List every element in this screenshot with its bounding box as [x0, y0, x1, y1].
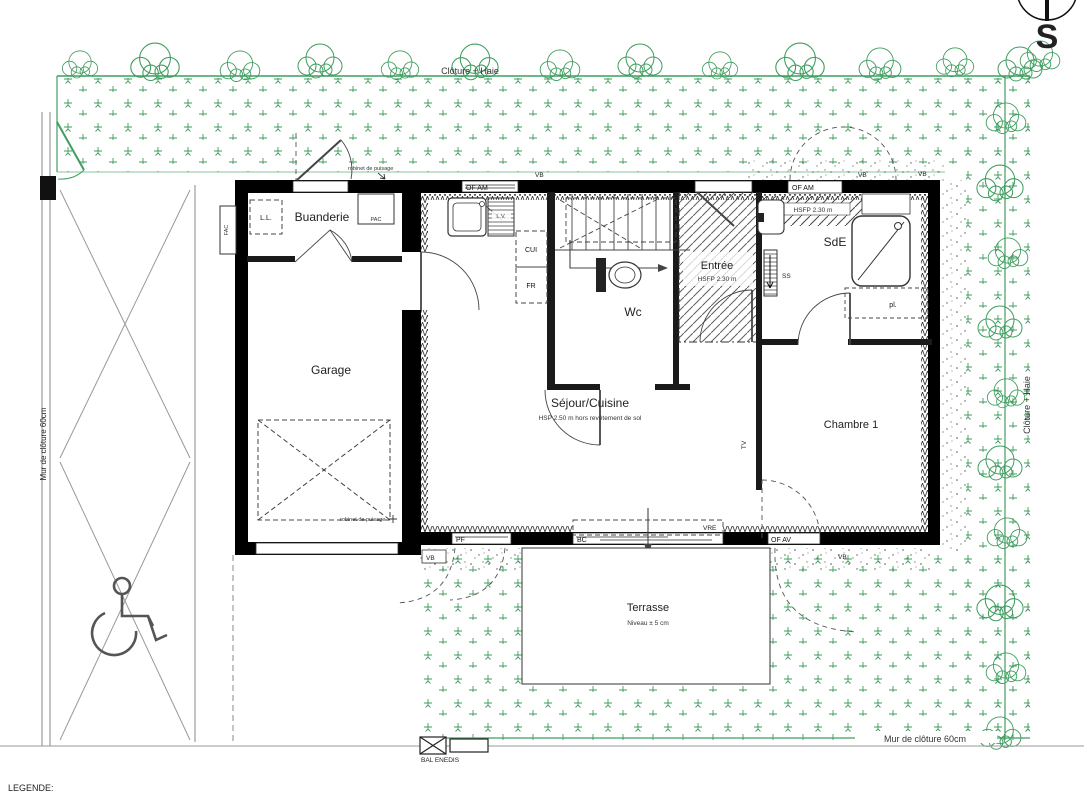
kitchen-units-dashed — [250, 200, 547, 520]
vb-top-3: VB — [918, 171, 927, 178]
lave-linge-label: L.L. — [260, 215, 272, 222]
robinet-haut-label: robinet de puisage — [348, 166, 393, 172]
shower — [852, 216, 910, 286]
sde-label: SdE — [824, 235, 847, 249]
garage-label: Garage — [311, 363, 351, 377]
cloture-haie-right-label: Clôture + Haie — [1022, 376, 1032, 434]
mur-cloture-left-label: Mur de clôture 60cm — [39, 407, 48, 480]
placard — [845, 288, 928, 318]
vre-label: VRE — [703, 525, 717, 532]
of-am-sde-label: OF AM — [792, 185, 814, 192]
of-am-cuisine-label: OF AM — [466, 185, 488, 192]
buanderie-label: Buanderie — [295, 210, 350, 224]
staircase — [555, 194, 690, 272]
wall-openings — [256, 181, 910, 563]
cloture-haie-top-label: Clôture + Haie — [441, 66, 499, 76]
lv-label: L.V. — [496, 214, 506, 220]
wc-label: Wc — [624, 305, 641, 319]
placard-label: pl. — [889, 302, 896, 309]
terrasse-label: Terrasse — [627, 602, 669, 614]
vb-top-2: VB — [858, 172, 867, 179]
legend-title: LEGENDE: — [8, 783, 54, 793]
driveway-marking — [60, 190, 190, 740]
compass-south-label: S — [1036, 18, 1059, 56]
floor-plan-page: Buanderie Garage Séjour/Cuisine HSP 2.50… — [0, 0, 1084, 800]
fr-label: FR — [526, 283, 535, 290]
washbasin — [758, 200, 784, 234]
bc-label: BC — [577, 537, 587, 544]
gate-pillar — [40, 176, 56, 200]
of-av-label: OF AV — [771, 537, 791, 544]
vb-bottom-right: VB — [838, 554, 847, 561]
towel-radiator — [764, 250, 777, 296]
bal-enedis-symbol — [420, 737, 488, 754]
fac-label: FAC — [224, 225, 230, 236]
terrasse-note: Niveau ± 5 cm — [627, 620, 669, 627]
vb-bottom-left: VB — [426, 555, 435, 562]
robinet-bas-label: robinet de puisage — [340, 517, 385, 523]
floor-plan-drawing: Buanderie Garage Séjour/Cuisine HSP 2.50… — [0, 0, 1084, 800]
entree-label: Entrée — [701, 260, 733, 272]
vb-top-1: VB — [535, 172, 544, 179]
ss-label: SS — [782, 273, 791, 280]
entree-note: HSFP 2.30 m — [698, 276, 737, 283]
sde-ceiling-note: HSFP 2.30 m — [794, 207, 833, 214]
sejour-note: HSP 2.50 m hors revêtement de sol — [539, 415, 642, 422]
mur-cloture-bottom-label: Mur de clôture 60cm — [884, 734, 966, 744]
pf-label: PF — [456, 537, 465, 544]
tv-label: TV — [741, 440, 748, 449]
bal-enedis-label: BAL ENEDIS — [421, 757, 460, 764]
toilet — [596, 258, 641, 292]
sejour-label: Séjour/Cuisine — [551, 396, 629, 410]
chambre1-label: Chambre 1 — [824, 419, 878, 431]
bay-window — [573, 508, 723, 554]
robinet-marks — [378, 173, 397, 523]
terrasse-slab — [522, 548, 770, 684]
cui-label: CUI — [525, 247, 537, 254]
handicap-icon — [92, 578, 167, 655]
pac-label: PAC — [371, 217, 382, 223]
